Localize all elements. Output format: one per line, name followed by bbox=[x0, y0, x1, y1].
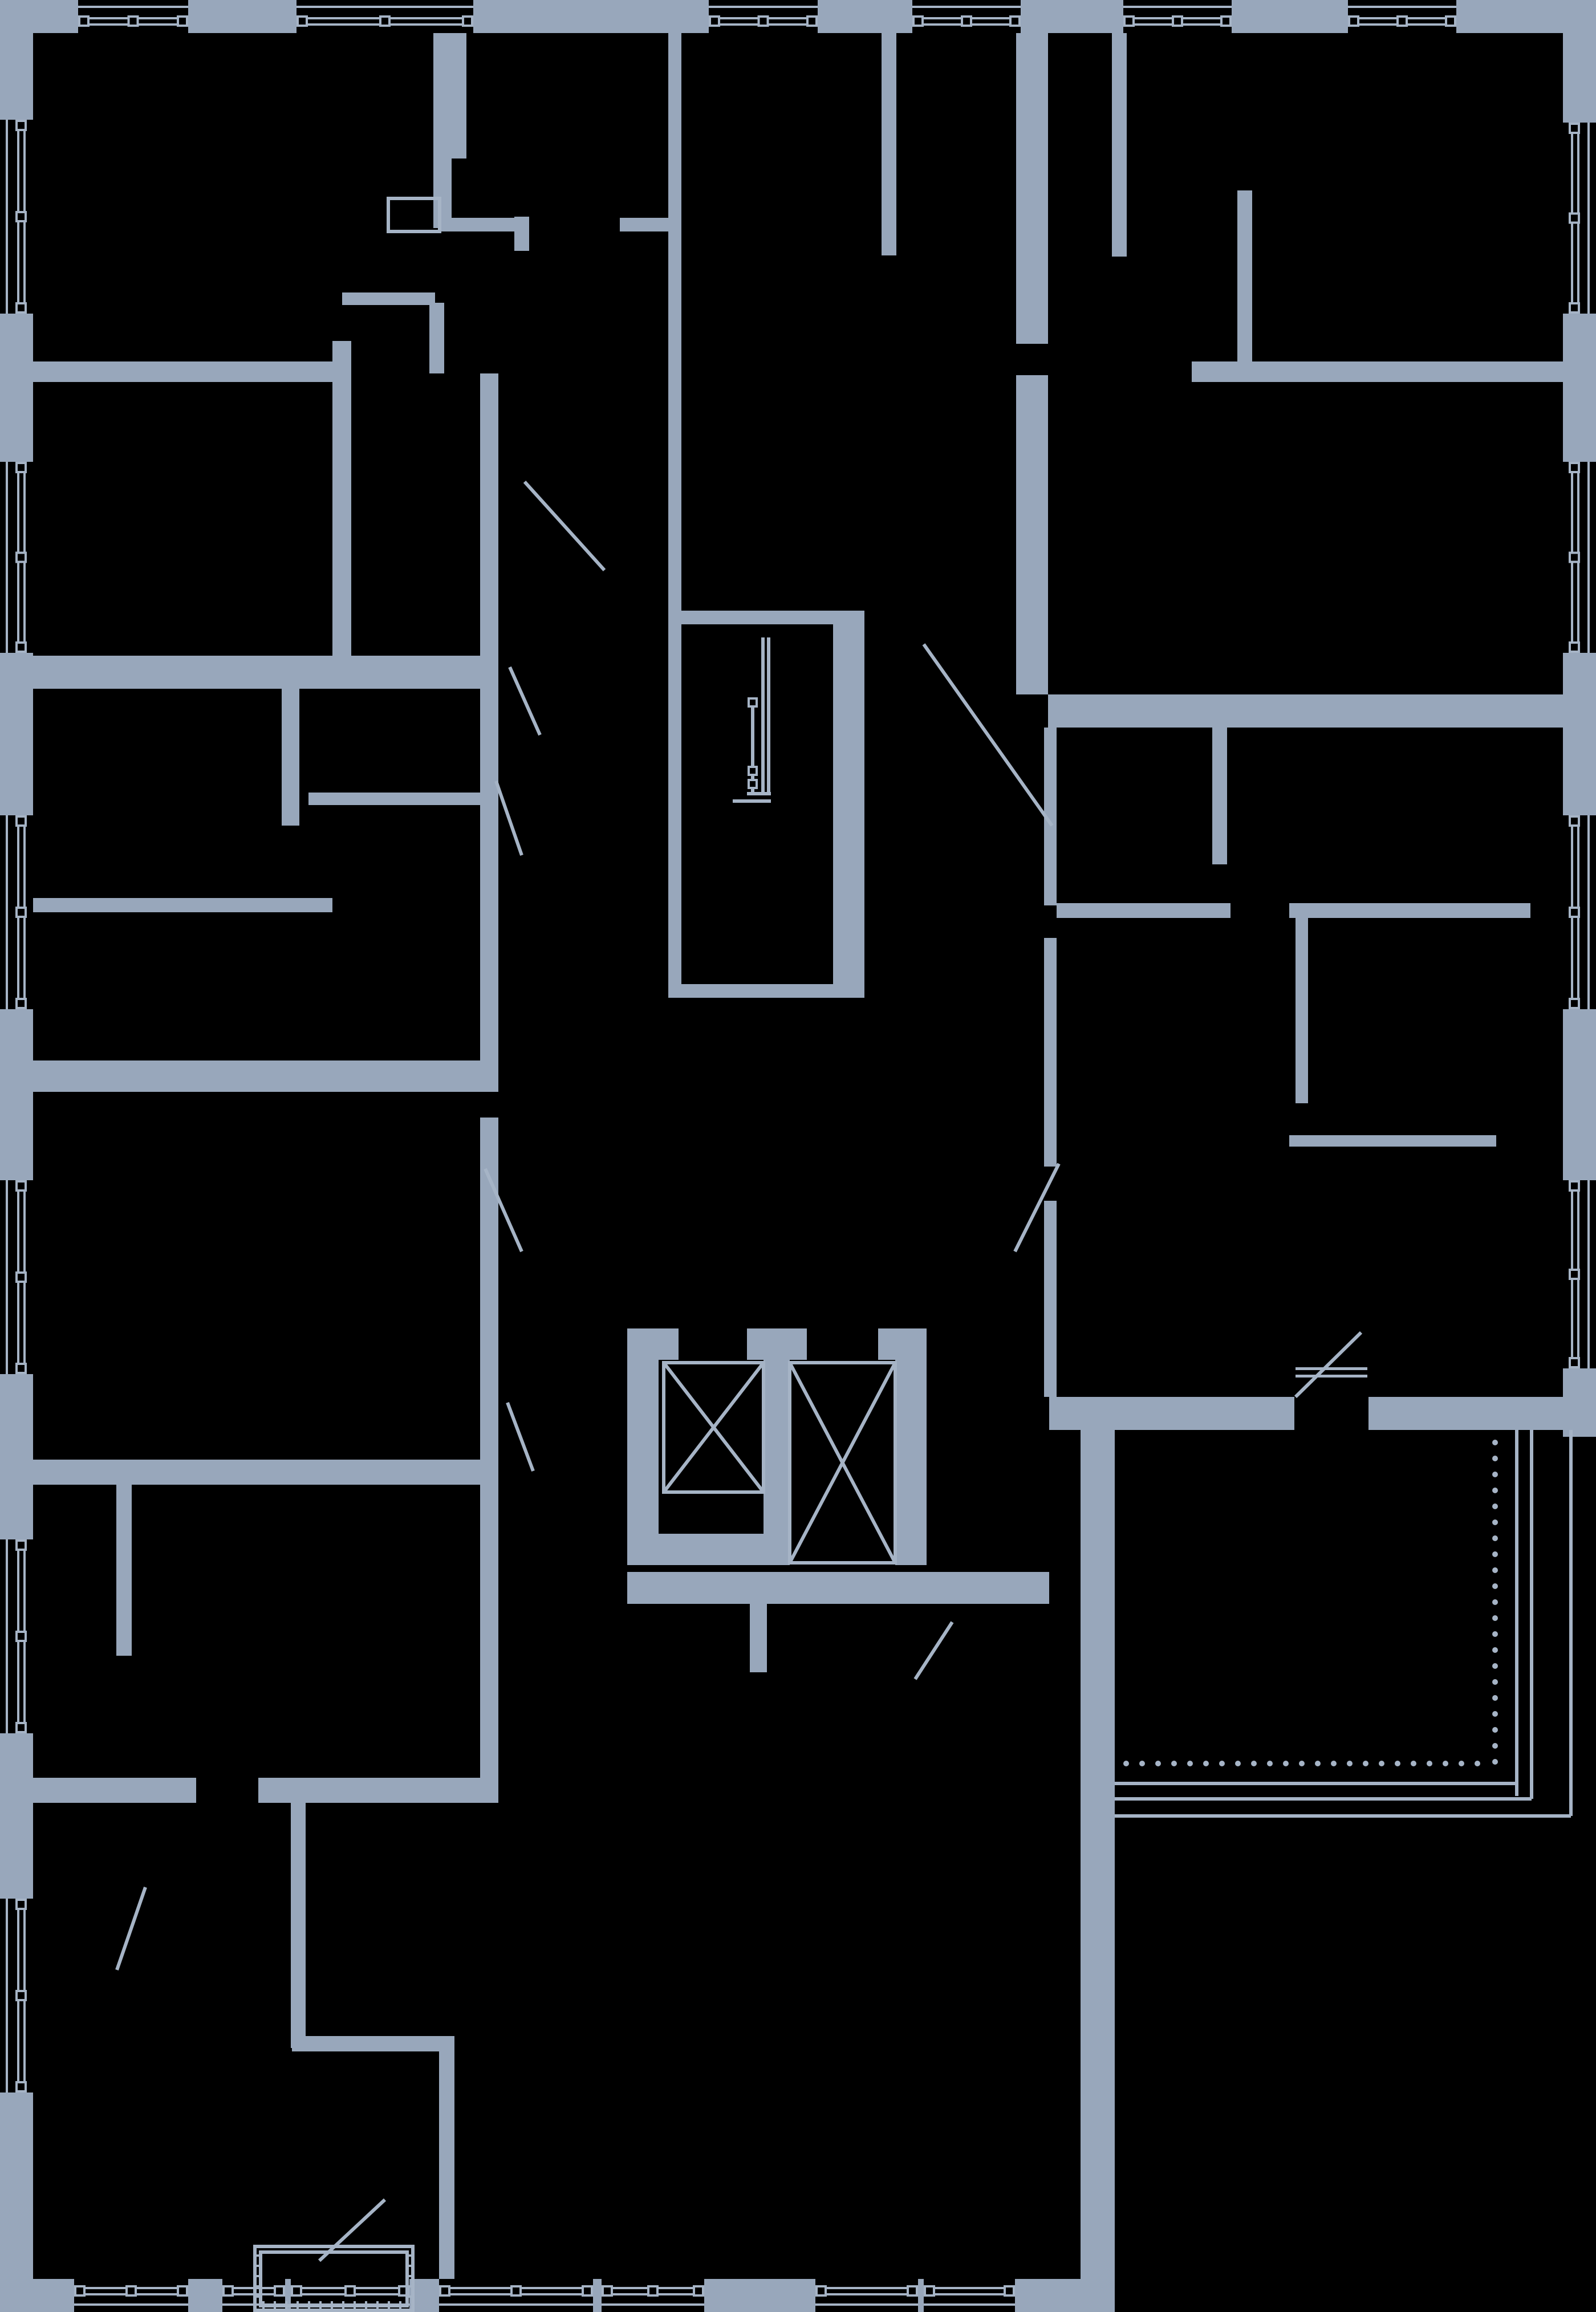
wall-segment bbox=[1016, 375, 1048, 694]
window-icon bbox=[0, 1539, 33, 1733]
window-icon bbox=[1563, 815, 1596, 1009]
wall-segment bbox=[1112, 33, 1127, 257]
mullion-post bbox=[1005, 2286, 1014, 2295]
mullion-post bbox=[913, 17, 923, 26]
wall-segment bbox=[1081, 1430, 1115, 2279]
mullion-post bbox=[17, 463, 26, 472]
mullion-post bbox=[1570, 1181, 1579, 1190]
mullion-post bbox=[127, 2286, 136, 2295]
mullion-post bbox=[440, 2286, 449, 2295]
terrace-dot bbox=[1492, 1519, 1498, 1525]
terrace-dot bbox=[1492, 1599, 1498, 1605]
window-icon bbox=[78, 0, 188, 33]
terrace-dot bbox=[1492, 1535, 1498, 1541]
mullion-post bbox=[17, 999, 26, 1008]
mullion-post bbox=[178, 17, 187, 26]
mullion-post bbox=[292, 2286, 301, 2295]
mullion-post bbox=[1221, 17, 1230, 26]
wall-segment bbox=[33, 361, 332, 382]
window-icon bbox=[1563, 1180, 1596, 1368]
mullion-post bbox=[17, 303, 26, 312]
terrace-dot bbox=[1492, 1711, 1498, 1717]
mullion-post bbox=[1570, 124, 1579, 133]
terrace-dot bbox=[1492, 1567, 1498, 1573]
terrace-dot bbox=[1299, 1761, 1305, 1766]
wall-segment bbox=[480, 373, 498, 656]
wall-segment bbox=[308, 793, 498, 805]
wall-segment bbox=[627, 1534, 790, 1565]
terrace-dot bbox=[1347, 1761, 1353, 1766]
mullion-post bbox=[17, 1181, 26, 1190]
floor-plan-canvas bbox=[0, 0, 1596, 2312]
terrace-dot bbox=[1492, 1695, 1498, 1701]
window-icon bbox=[602, 2279, 704, 2312]
wall-segment bbox=[33, 656, 498, 689]
terrace-dot bbox=[1492, 1456, 1498, 1461]
mullion-post bbox=[1570, 999, 1579, 1008]
mullion-post bbox=[710, 17, 719, 26]
wall-segment bbox=[1237, 190, 1252, 361]
terrace-dot bbox=[1492, 1583, 1498, 1589]
wall-segment bbox=[258, 1778, 498, 1803]
terrace-dot bbox=[1492, 1551, 1498, 1557]
window-icon bbox=[1348, 0, 1456, 33]
wall-segment bbox=[627, 1328, 679, 1360]
window-icon bbox=[912, 0, 1021, 33]
wall-segment bbox=[1049, 1397, 1294, 1430]
mullion-post bbox=[694, 2286, 703, 2295]
window-icon bbox=[1563, 123, 1596, 314]
mullion-post bbox=[346, 2286, 355, 2295]
terrace-dot bbox=[1155, 1761, 1161, 1766]
wall-segment bbox=[332, 341, 351, 660]
floor-plan-page bbox=[0, 0, 1596, 2312]
window-icon bbox=[709, 0, 818, 33]
wall-segment bbox=[668, 984, 864, 998]
mullion-post bbox=[79, 17, 88, 26]
wall-segment bbox=[882, 33, 896, 255]
terrace-dot bbox=[1492, 1743, 1498, 1749]
wall-segment bbox=[1289, 903, 1530, 918]
terrace-dot bbox=[1251, 1761, 1257, 1766]
mullion-post bbox=[1570, 816, 1579, 826]
terrace-dot bbox=[1331, 1761, 1337, 1766]
wall-segment bbox=[33, 1460, 480, 1485]
wall-segment bbox=[764, 1360, 790, 1534]
mullion-post bbox=[807, 17, 817, 26]
mullion-post bbox=[17, 643, 26, 652]
terrace-dot bbox=[1411, 1761, 1416, 1766]
window-icon bbox=[0, 1180, 33, 1374]
wall-segment bbox=[480, 1118, 498, 1778]
mullion-post bbox=[178, 2286, 187, 2295]
mullion-post bbox=[129, 17, 138, 26]
wall-segment bbox=[433, 159, 452, 228]
mullion-post bbox=[962, 17, 971, 26]
mullion-post bbox=[224, 2286, 233, 2295]
mullion-post bbox=[1446, 17, 1455, 26]
wall-segment bbox=[1057, 903, 1230, 918]
door-leaf bbox=[1296, 1367, 1367, 1370]
wall-segment bbox=[33, 1778, 196, 1803]
window-icon bbox=[1563, 462, 1596, 653]
terrace-dot bbox=[1395, 1761, 1400, 1766]
wall-segment bbox=[895, 1360, 927, 1565]
wall-segment bbox=[1048, 694, 1563, 728]
mullion-post bbox=[75, 2286, 84, 2295]
terrace-dot bbox=[1267, 1761, 1273, 1766]
terrace-dot bbox=[1492, 1631, 1498, 1637]
wall-segment bbox=[33, 898, 332, 912]
terrace-dot bbox=[1363, 1761, 1368, 1766]
mullion-post bbox=[511, 2286, 521, 2295]
wall-segment bbox=[878, 1328, 927, 1360]
mullion-post bbox=[1124, 17, 1134, 26]
terrace-dot bbox=[1123, 1761, 1129, 1766]
mullion-post bbox=[275, 2286, 284, 2295]
wall-segment bbox=[433, 33, 466, 159]
wall-segment bbox=[668, 33, 681, 998]
window-icon bbox=[0, 1899, 33, 2092]
terrace-dot bbox=[1171, 1761, 1177, 1766]
mullion-post bbox=[1570, 1270, 1579, 1279]
door-leaf bbox=[1296, 1375, 1367, 1378]
terrace-dot bbox=[1235, 1761, 1241, 1766]
window-icon bbox=[439, 2279, 593, 2312]
terrace-dot bbox=[1203, 1761, 1209, 1766]
wall-segment bbox=[833, 611, 864, 998]
window-icon bbox=[1123, 0, 1232, 33]
wall-segment bbox=[291, 1803, 306, 2048]
mullion-post bbox=[925, 2286, 934, 2295]
terrace-dot bbox=[1492, 1679, 1498, 1685]
terrace-dot bbox=[1492, 1615, 1498, 1621]
mullion-post bbox=[759, 17, 768, 26]
terrace-dot bbox=[1187, 1761, 1193, 1766]
mullion-post bbox=[17, 1632, 26, 1641]
wall-segment bbox=[627, 1572, 1049, 1604]
window-icon bbox=[297, 0, 473, 33]
wall-segment bbox=[33, 1060, 498, 1092]
stair-rail-node bbox=[749, 698, 757, 706]
mullion-post bbox=[17, 553, 26, 562]
terrace-dot bbox=[1492, 1647, 1498, 1653]
wall-segment bbox=[747, 1328, 807, 1360]
wall-segment bbox=[292, 2036, 454, 2051]
wall-segment bbox=[480, 689, 498, 1085]
wall-segment bbox=[514, 217, 529, 251]
terrace-dot bbox=[1492, 1504, 1498, 1509]
terrace-dot bbox=[1283, 1761, 1289, 1766]
mullion-post bbox=[1398, 17, 1407, 26]
terrace-dot bbox=[1459, 1761, 1464, 1766]
wall-segment bbox=[282, 689, 299, 826]
mullion-post bbox=[17, 1900, 26, 1909]
stair-rail-node bbox=[749, 767, 757, 775]
wall-segment bbox=[116, 1485, 132, 1656]
terrace-dot bbox=[1315, 1761, 1321, 1766]
mullion-post bbox=[603, 2286, 612, 2295]
window-icon bbox=[0, 462, 33, 653]
wall-segment bbox=[439, 2051, 454, 2279]
wall-segment bbox=[1044, 1201, 1057, 1397]
mullion-post bbox=[17, 1991, 26, 2000]
mullion-post bbox=[908, 2286, 917, 2295]
window-icon bbox=[0, 815, 33, 1009]
plan-background bbox=[0, 0, 1596, 2312]
terrace-dot bbox=[1492, 1488, 1498, 1493]
terrace-dot bbox=[1492, 1663, 1498, 1669]
mullion-post bbox=[17, 1273, 26, 1282]
mullion-post bbox=[1570, 643, 1579, 652]
wall-segment bbox=[1296, 918, 1308, 1103]
wall-segment bbox=[1289, 1135, 1496, 1147]
wall-segment bbox=[1192, 361, 1563, 382]
mullion-post bbox=[17, 1723, 26, 1732]
mullion-post bbox=[17, 1364, 26, 1373]
mullion-post bbox=[1570, 1358, 1579, 1367]
terrace-dot bbox=[1443, 1761, 1448, 1766]
terrace-dot bbox=[1219, 1761, 1225, 1766]
mullion-post bbox=[463, 17, 472, 26]
window-icon bbox=[74, 2279, 188, 2312]
mullion-post bbox=[17, 1541, 26, 1550]
mullion-post bbox=[583, 2286, 592, 2295]
wall-segment bbox=[1044, 938, 1057, 1167]
window-icon bbox=[815, 2279, 918, 2312]
window-icon bbox=[0, 120, 33, 314]
terrace-dot bbox=[1492, 1440, 1498, 1445]
mullion-post bbox=[1570, 463, 1579, 472]
terrace-dot bbox=[1139, 1761, 1145, 1766]
mullion-post bbox=[1173, 17, 1182, 26]
terrace-dot bbox=[1379, 1761, 1384, 1766]
mullion-post bbox=[648, 2286, 657, 2295]
wall-segment bbox=[429, 303, 444, 373]
mullion-post bbox=[17, 2082, 26, 2091]
wall-segment bbox=[342, 292, 435, 305]
terrace-dot bbox=[1492, 1759, 1498, 1765]
mullion-post bbox=[1010, 17, 1020, 26]
mullion-post bbox=[1570, 908, 1579, 917]
mullion-post bbox=[817, 2286, 826, 2295]
wall-segment bbox=[1016, 33, 1048, 344]
stair-rail-node bbox=[749, 780, 757, 788]
wall-segment bbox=[620, 218, 668, 231]
wall-segment bbox=[1212, 728, 1227, 864]
mullion-post bbox=[1570, 303, 1579, 312]
window-icon bbox=[924, 2279, 1015, 2312]
terrace-dot bbox=[1475, 1761, 1480, 1766]
wall-segment bbox=[750, 1604, 767, 1672]
mullion-post bbox=[380, 17, 389, 26]
mullion-post bbox=[1570, 553, 1579, 562]
terrace-dot bbox=[1492, 1472, 1498, 1477]
mullion-post bbox=[17, 212, 26, 221]
mullion-post bbox=[1570, 214, 1579, 223]
mullion-post bbox=[17, 908, 26, 917]
terrace-dot bbox=[1427, 1761, 1432, 1766]
mullion-post bbox=[17, 121, 26, 130]
mullion-post bbox=[298, 17, 307, 26]
mullion-post bbox=[1349, 17, 1358, 26]
wall-segment bbox=[1368, 1397, 1563, 1430]
mullion-post bbox=[17, 816, 26, 826]
terrace-dot bbox=[1492, 1727, 1498, 1733]
